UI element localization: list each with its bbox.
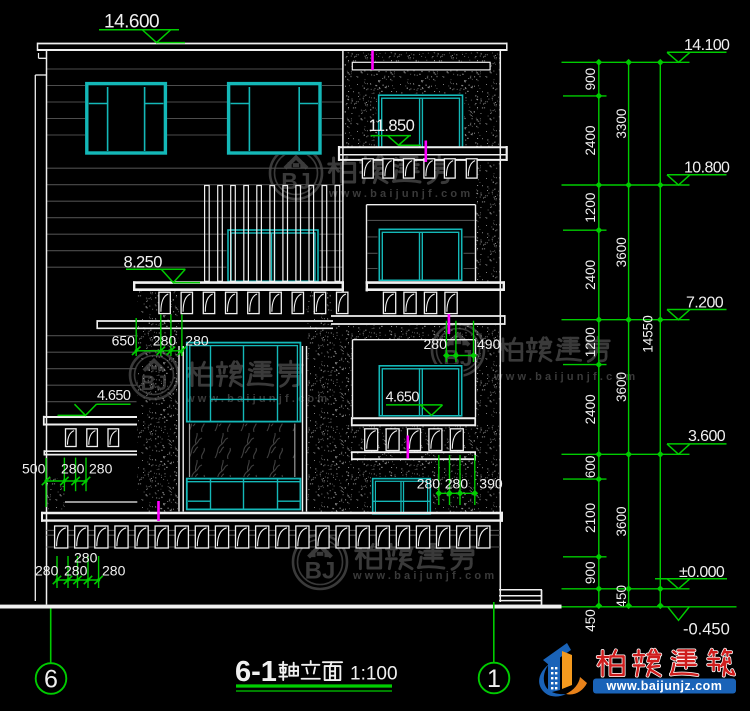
svg-text:3300: 3300 xyxy=(614,109,629,139)
svg-text:450: 450 xyxy=(583,609,598,632)
svg-text:14.100: 14.100 xyxy=(684,37,730,54)
svg-text:280: 280 xyxy=(102,563,126,579)
svg-text:2400: 2400 xyxy=(583,394,598,424)
svg-text:650: 650 xyxy=(112,333,136,349)
svg-text:280: 280 xyxy=(417,476,441,492)
svg-text:2100: 2100 xyxy=(583,503,598,533)
svg-text:280: 280 xyxy=(61,461,85,477)
svg-text:6-1: 6-1 xyxy=(235,656,277,688)
svg-text:6: 6 xyxy=(44,666,58,694)
svg-text:-0.450: -0.450 xyxy=(683,621,730,639)
svg-text:14550: 14550 xyxy=(641,315,656,353)
svg-text:900: 900 xyxy=(583,562,598,585)
svg-text:280: 280 xyxy=(64,563,88,579)
svg-text:900: 900 xyxy=(583,68,598,91)
svg-text:280: 280 xyxy=(153,333,177,349)
svg-text:1200: 1200 xyxy=(583,193,598,223)
svg-text:10.800: 10.800 xyxy=(684,160,730,177)
svg-text:3600: 3600 xyxy=(614,372,629,402)
svg-text:3600: 3600 xyxy=(614,237,629,267)
svg-text:www.baijunjz.com: www.baijunjz.com xyxy=(606,679,723,693)
svg-text:280: 280 xyxy=(185,333,209,349)
svg-text:600: 600 xyxy=(583,456,598,479)
svg-text:1:100: 1:100 xyxy=(350,664,398,685)
svg-text:11.850: 11.850 xyxy=(369,117,415,135)
svg-text:www.baijunjf.com: www.baijunjf.com xyxy=(352,570,497,582)
svg-text:1: 1 xyxy=(487,665,501,693)
svg-text:4.650: 4.650 xyxy=(97,388,131,404)
svg-text:280: 280 xyxy=(89,461,113,477)
svg-text:3.600: 3.600 xyxy=(688,428,726,445)
svg-text:2400: 2400 xyxy=(583,260,598,290)
svg-text:500: 500 xyxy=(22,461,46,477)
svg-text:www.baijunjf.com: www.baijunjf.com xyxy=(328,188,473,200)
svg-text:4.650: 4.650 xyxy=(386,390,420,406)
svg-text:280: 280 xyxy=(424,336,448,352)
svg-text:3600: 3600 xyxy=(614,506,629,536)
svg-text:490: 490 xyxy=(477,336,501,352)
svg-text:2400: 2400 xyxy=(583,125,598,155)
svg-text:BJ: BJ xyxy=(305,558,336,585)
svg-text:1200: 1200 xyxy=(583,327,598,357)
svg-text:450: 450 xyxy=(614,585,629,608)
svg-text:280: 280 xyxy=(35,563,59,579)
svg-text:280: 280 xyxy=(445,476,469,492)
svg-text:390: 390 xyxy=(479,476,503,492)
